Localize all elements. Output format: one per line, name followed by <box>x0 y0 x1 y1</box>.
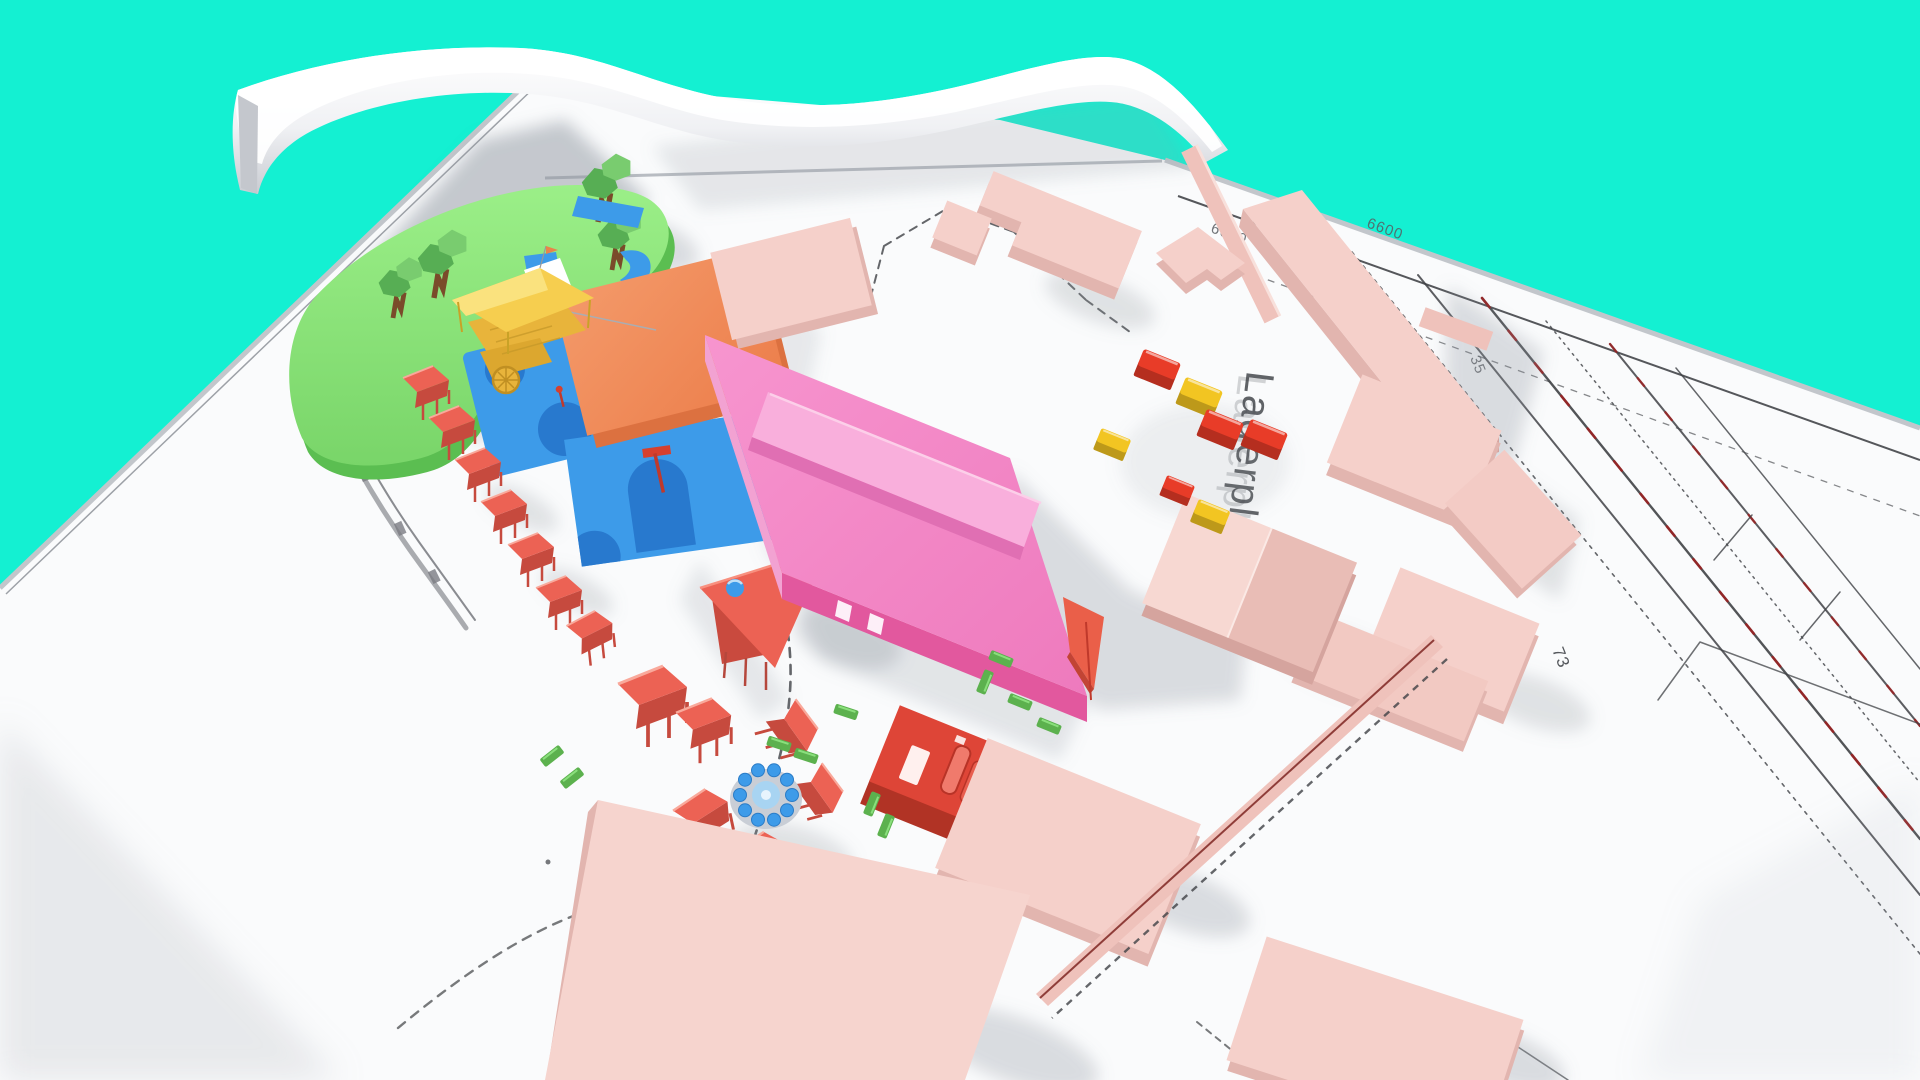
ribbon-end-face <box>238 95 258 194</box>
model-viewport[interactable]: Lagerplatz Lagerplatz 6600 6600 35 73 <box>0 0 1920 1080</box>
site-model-canvas[interactable]: Lagerplatz Lagerplatz 6600 6600 35 73 <box>0 0 1920 1080</box>
